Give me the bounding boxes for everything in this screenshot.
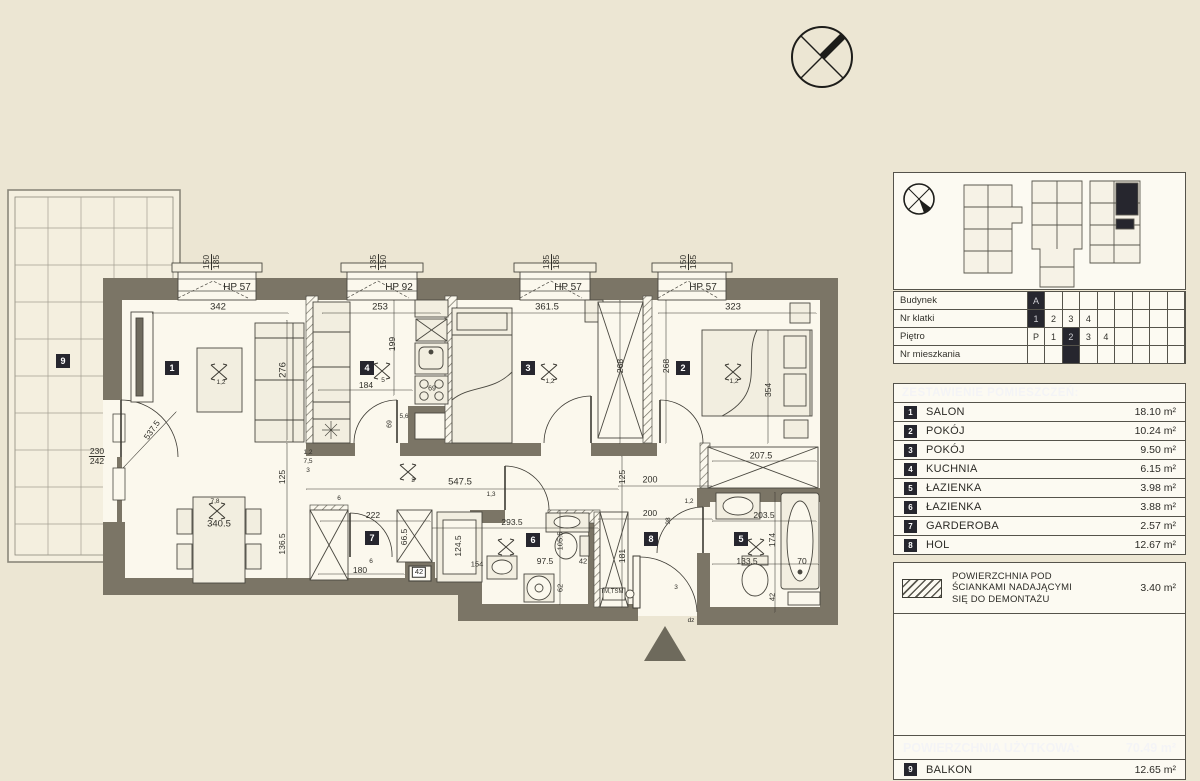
meta-row-label: Nr klatki xyxy=(894,310,1028,327)
meta-cell xyxy=(1150,292,1167,309)
room-row-salon: 1SALON18.10 m² xyxy=(893,402,1186,422)
room-row-area: 3.98 m² xyxy=(1140,482,1176,494)
meta-cell xyxy=(1168,346,1185,363)
room-badge-9: 9 xyxy=(56,354,70,368)
meta-cell xyxy=(1045,292,1062,309)
meta-cell xyxy=(1115,292,1132,309)
meta-cell xyxy=(1115,328,1132,345)
room-row-area: 18.10 m² xyxy=(1135,406,1176,418)
tv-icon xyxy=(136,318,143,396)
rooms-header: ZESTAWIENIE POMIESZCZEŃ: xyxy=(893,383,1186,403)
info-panel: BudynekANr klatki1234PiętroP1234Nr miesz… xyxy=(893,0,1186,781)
location-thumbnails xyxy=(893,172,1186,290)
room-row-badge: 1 xyxy=(904,406,917,419)
meta-cell: 3 xyxy=(1080,328,1097,345)
room-row-area: 12.67 m² xyxy=(1135,539,1176,551)
meta-row: Nr klatki1234 xyxy=(893,309,1186,328)
rooms-header-label: ZESTAWIENIE POMIESZCZEŃ: xyxy=(902,387,1079,399)
room-row-area: 9.50 m² xyxy=(1140,444,1176,456)
meta-cell: 4 xyxy=(1098,328,1115,345)
demolition-area: 3.40 m² xyxy=(1140,582,1176,594)
meta-cell: 2 xyxy=(1045,310,1062,327)
balcony-name: BALKON xyxy=(926,764,1135,776)
room-row-badge: 4 xyxy=(904,463,917,476)
meta-row-label: Budynek xyxy=(894,292,1028,309)
room-badge-2: 2 xyxy=(676,361,690,375)
meta-cell xyxy=(1133,346,1150,363)
demolition-text: POWIERZCHNIA POD ŚCIANKAMI NADAJĄCYMI SI… xyxy=(952,571,1140,606)
room-row-łazienka: 5ŁAZIENKA3.98 m² xyxy=(893,478,1186,498)
meta-cell: 3 xyxy=(1063,310,1080,327)
room-badge-7: 7 xyxy=(365,531,379,545)
room-row-name: SALON xyxy=(926,406,1135,418)
meta-cell xyxy=(1063,292,1080,309)
balcony-area: 12.65 m² xyxy=(1135,764,1176,776)
meta-cell xyxy=(1063,346,1080,363)
meta-cell: P xyxy=(1028,328,1045,345)
meta-cell xyxy=(1133,292,1150,309)
room-row-badge: 7 xyxy=(904,520,917,533)
room-badge-3: 3 xyxy=(521,361,535,375)
building-a-thumbnail xyxy=(964,185,1022,273)
room-row-kuchnia: 4KUCHNIA6.15 m² xyxy=(893,459,1186,479)
meta-cell xyxy=(1150,346,1167,363)
meta-cell: 2 xyxy=(1063,328,1080,345)
room-row-badge: 2 xyxy=(904,425,917,438)
meta-cell xyxy=(1168,328,1185,345)
meta-cell xyxy=(1098,346,1115,363)
meta-cell: A xyxy=(1028,292,1045,309)
meta-cell xyxy=(1080,346,1097,363)
meta-cell xyxy=(1150,328,1167,345)
room-row-area: 2.57 m² xyxy=(1140,520,1176,532)
room-row-name: KUCHNIA xyxy=(926,463,1140,475)
meta-cell xyxy=(1150,310,1167,327)
meta-row: PiętroP1234 xyxy=(893,327,1186,346)
meta-row-label: Piętro xyxy=(894,328,1028,345)
meta-cell xyxy=(1115,346,1132,363)
room-row-name: ŁAZIENKA xyxy=(926,482,1140,494)
room-row-badge: 3 xyxy=(904,444,917,457)
room-row-name: POKÓJ xyxy=(926,444,1140,456)
total-area-bar: POWIERZCHNIA UŻYTKOWA: 70.49 m² xyxy=(893,735,1186,760)
rooms-list: 1SALON18.10 m²2POKÓJ10.24 m²3POKÓJ9.50 m… xyxy=(893,403,1186,563)
compass-mini-icon xyxy=(904,184,934,214)
room-row-hol: 8HOL12.67 m² xyxy=(893,535,1186,555)
room-badge-8: 8 xyxy=(644,532,658,546)
building-c-thumbnail xyxy=(1090,181,1140,263)
balcony-row: 9 BALKON 12.65 m² xyxy=(893,759,1186,780)
meta-row-label: Nr mieszkania xyxy=(894,346,1028,363)
room-row-area: 3.88 m² xyxy=(1140,501,1176,513)
meta-cell xyxy=(1080,292,1097,309)
room-row-badge: 6 xyxy=(904,501,917,514)
room-row-name: HOL xyxy=(926,539,1135,551)
total-area-label: POWIERZCHNIA UŻYTKOWA: xyxy=(903,741,1080,755)
room-badge-6: 6 xyxy=(526,533,540,547)
meta-row: Nr mieszkania xyxy=(893,345,1186,364)
meta-row: BudynekA xyxy=(893,291,1186,310)
room-row-badge: 8 xyxy=(904,539,917,552)
meta-cell xyxy=(1133,310,1150,327)
meta-cell xyxy=(1133,328,1150,345)
meta-cell xyxy=(1098,292,1115,309)
meta-cell xyxy=(1168,292,1185,309)
room-row-area: 10.24 m² xyxy=(1135,425,1176,437)
room-badge-4: 4 xyxy=(360,361,374,375)
room-row-name: ŁAZIENKA xyxy=(926,501,1140,513)
total-area-value: 70.49 m² xyxy=(1126,741,1176,755)
meta-cell xyxy=(1115,310,1132,327)
building-b-thumbnail xyxy=(1032,181,1082,287)
meta-cell: 4 xyxy=(1080,310,1097,327)
room-row-pokój: 2POKÓJ10.24 m² xyxy=(893,421,1186,441)
meta-cell: 1 xyxy=(1028,310,1045,327)
meta-table: BudynekANr klatki1234PiętroP1234Nr miesz… xyxy=(893,292,1186,369)
entrance-triangle xyxy=(644,626,686,661)
north-compass-icon xyxy=(792,27,852,87)
balcony-badge: 9 xyxy=(904,763,917,776)
demolition-note: POWIERZCHNIA POD ŚCIANKAMI NADAJĄCYMI SI… xyxy=(893,562,1186,614)
current-unit-highlight xyxy=(1116,183,1138,215)
room-row-garderoba: 7GARDEROBA2.57 m² xyxy=(893,516,1186,536)
meta-cell xyxy=(1028,346,1045,363)
meta-cell xyxy=(1098,310,1115,327)
floorplan-document: HP 57HP 92HP 57HP 5715018513515013518515… xyxy=(0,0,1200,781)
room-row-pokój: 3POKÓJ9.50 m² xyxy=(893,440,1186,460)
room-badge-1: 1 xyxy=(165,361,179,375)
room-row-łazienka: 6ŁAZIENKA3.88 m² xyxy=(893,497,1186,517)
room-row-name: GARDEROBA xyxy=(926,520,1140,532)
hatch-swatch-icon xyxy=(902,579,942,598)
meta-cell xyxy=(1168,310,1185,327)
meta-cell xyxy=(1045,346,1062,363)
room-row-name: POKÓJ xyxy=(926,425,1135,437)
room-badge-5: 5 xyxy=(734,532,748,546)
meta-cell: 1 xyxy=(1045,328,1062,345)
room-row-area: 6.15 m² xyxy=(1140,463,1176,475)
panel-spacer xyxy=(893,613,1186,736)
room-row-badge: 5 xyxy=(904,482,917,495)
